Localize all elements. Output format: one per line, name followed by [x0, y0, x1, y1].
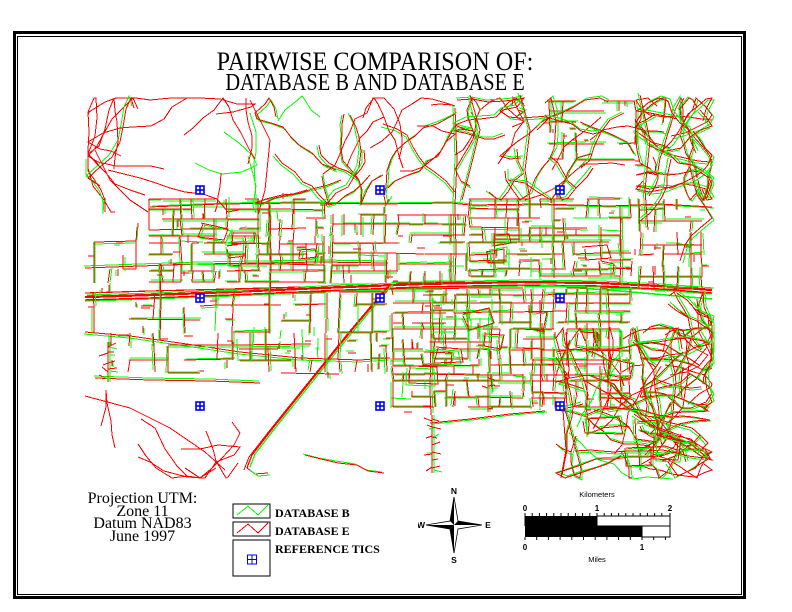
- svg-text:Kilometers: Kilometers: [579, 490, 615, 499]
- svg-text:0: 0: [523, 504, 528, 513]
- svg-text:Miles: Miles: [588, 555, 606, 564]
- svg-text:1: 1: [595, 504, 600, 513]
- svg-text:1: 1: [640, 543, 645, 552]
- svg-text:E: E: [485, 520, 491, 530]
- svg-text:W: W: [418, 520, 426, 530]
- svg-text:N: N: [451, 486, 457, 496]
- svg-text:2: 2: [668, 504, 673, 513]
- svg-text:0: 0: [523, 543, 528, 552]
- svg-text:S: S: [451, 555, 457, 565]
